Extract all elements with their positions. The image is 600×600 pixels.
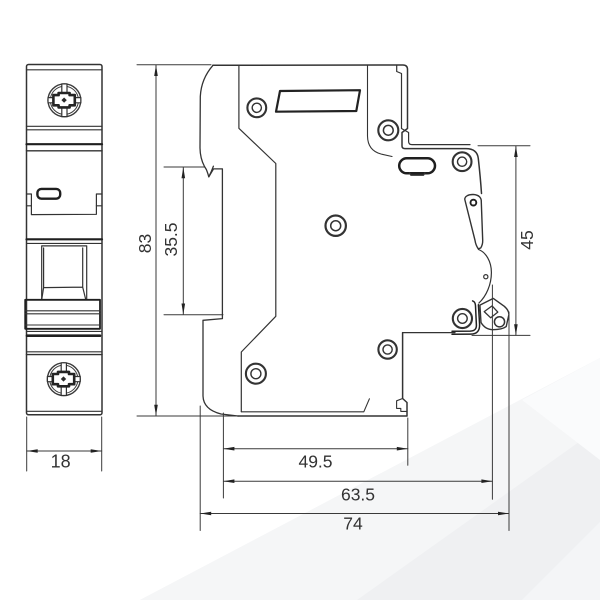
svg-text:83: 83 (135, 234, 155, 253)
svg-text:74: 74 (343, 514, 363, 534)
svg-text:45: 45 (517, 230, 537, 249)
svg-text:18: 18 (51, 452, 71, 472)
svg-text:63.5: 63.5 (341, 485, 375, 505)
svg-text:35.5: 35.5 (161, 222, 181, 256)
svg-text:49.5: 49.5 (298, 452, 332, 472)
